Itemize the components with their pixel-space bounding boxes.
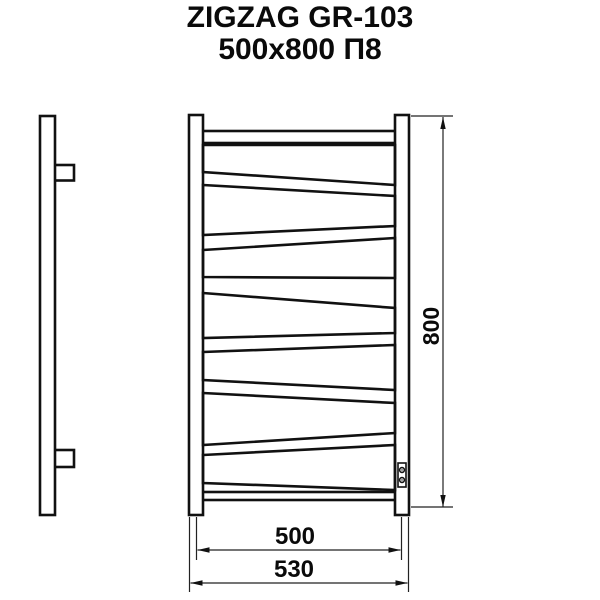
- rail-width-dimension: 500: [197, 517, 402, 560]
- zigzag-rung-1: [203, 145, 395, 185]
- arrowhead-icon: [191, 580, 203, 585]
- front-view: [189, 115, 409, 515]
- zigzag-rung-4: [203, 293, 395, 338]
- right-post: [395, 115, 409, 515]
- bottom-rung: [191, 492, 407, 500]
- brand-badge-icon: [398, 463, 406, 487]
- zigzag-rung-3: [203, 238, 395, 278]
- overall-width-dimension-value: 530: [274, 556, 314, 583]
- arrowhead-icon: [440, 495, 445, 507]
- arrowhead-icon: [389, 547, 401, 552]
- rail-width-dimension-value: 500: [275, 523, 315, 550]
- arrowhead-icon: [396, 580, 408, 585]
- arrowhead-icon: [440, 117, 445, 129]
- zigzag-rungs: [203, 145, 395, 490]
- top-rung: [191, 131, 407, 143]
- technical-drawing: 800 500 530: [0, 0, 600, 600]
- left-post: [189, 115, 203, 515]
- zigzag-rung-6: [203, 393, 395, 445]
- height-dimension-value: 800: [418, 307, 444, 345]
- height-dimension: 800: [411, 116, 453, 507]
- zigzag-rung-7: [203, 445, 395, 490]
- arrowhead-icon: [198, 547, 210, 552]
- zigzag-rung-5: [203, 345, 395, 390]
- zigzag-rung-2: [203, 185, 395, 235]
- side-view-post: [40, 116, 55, 515]
- side-view: [40, 116, 74, 515]
